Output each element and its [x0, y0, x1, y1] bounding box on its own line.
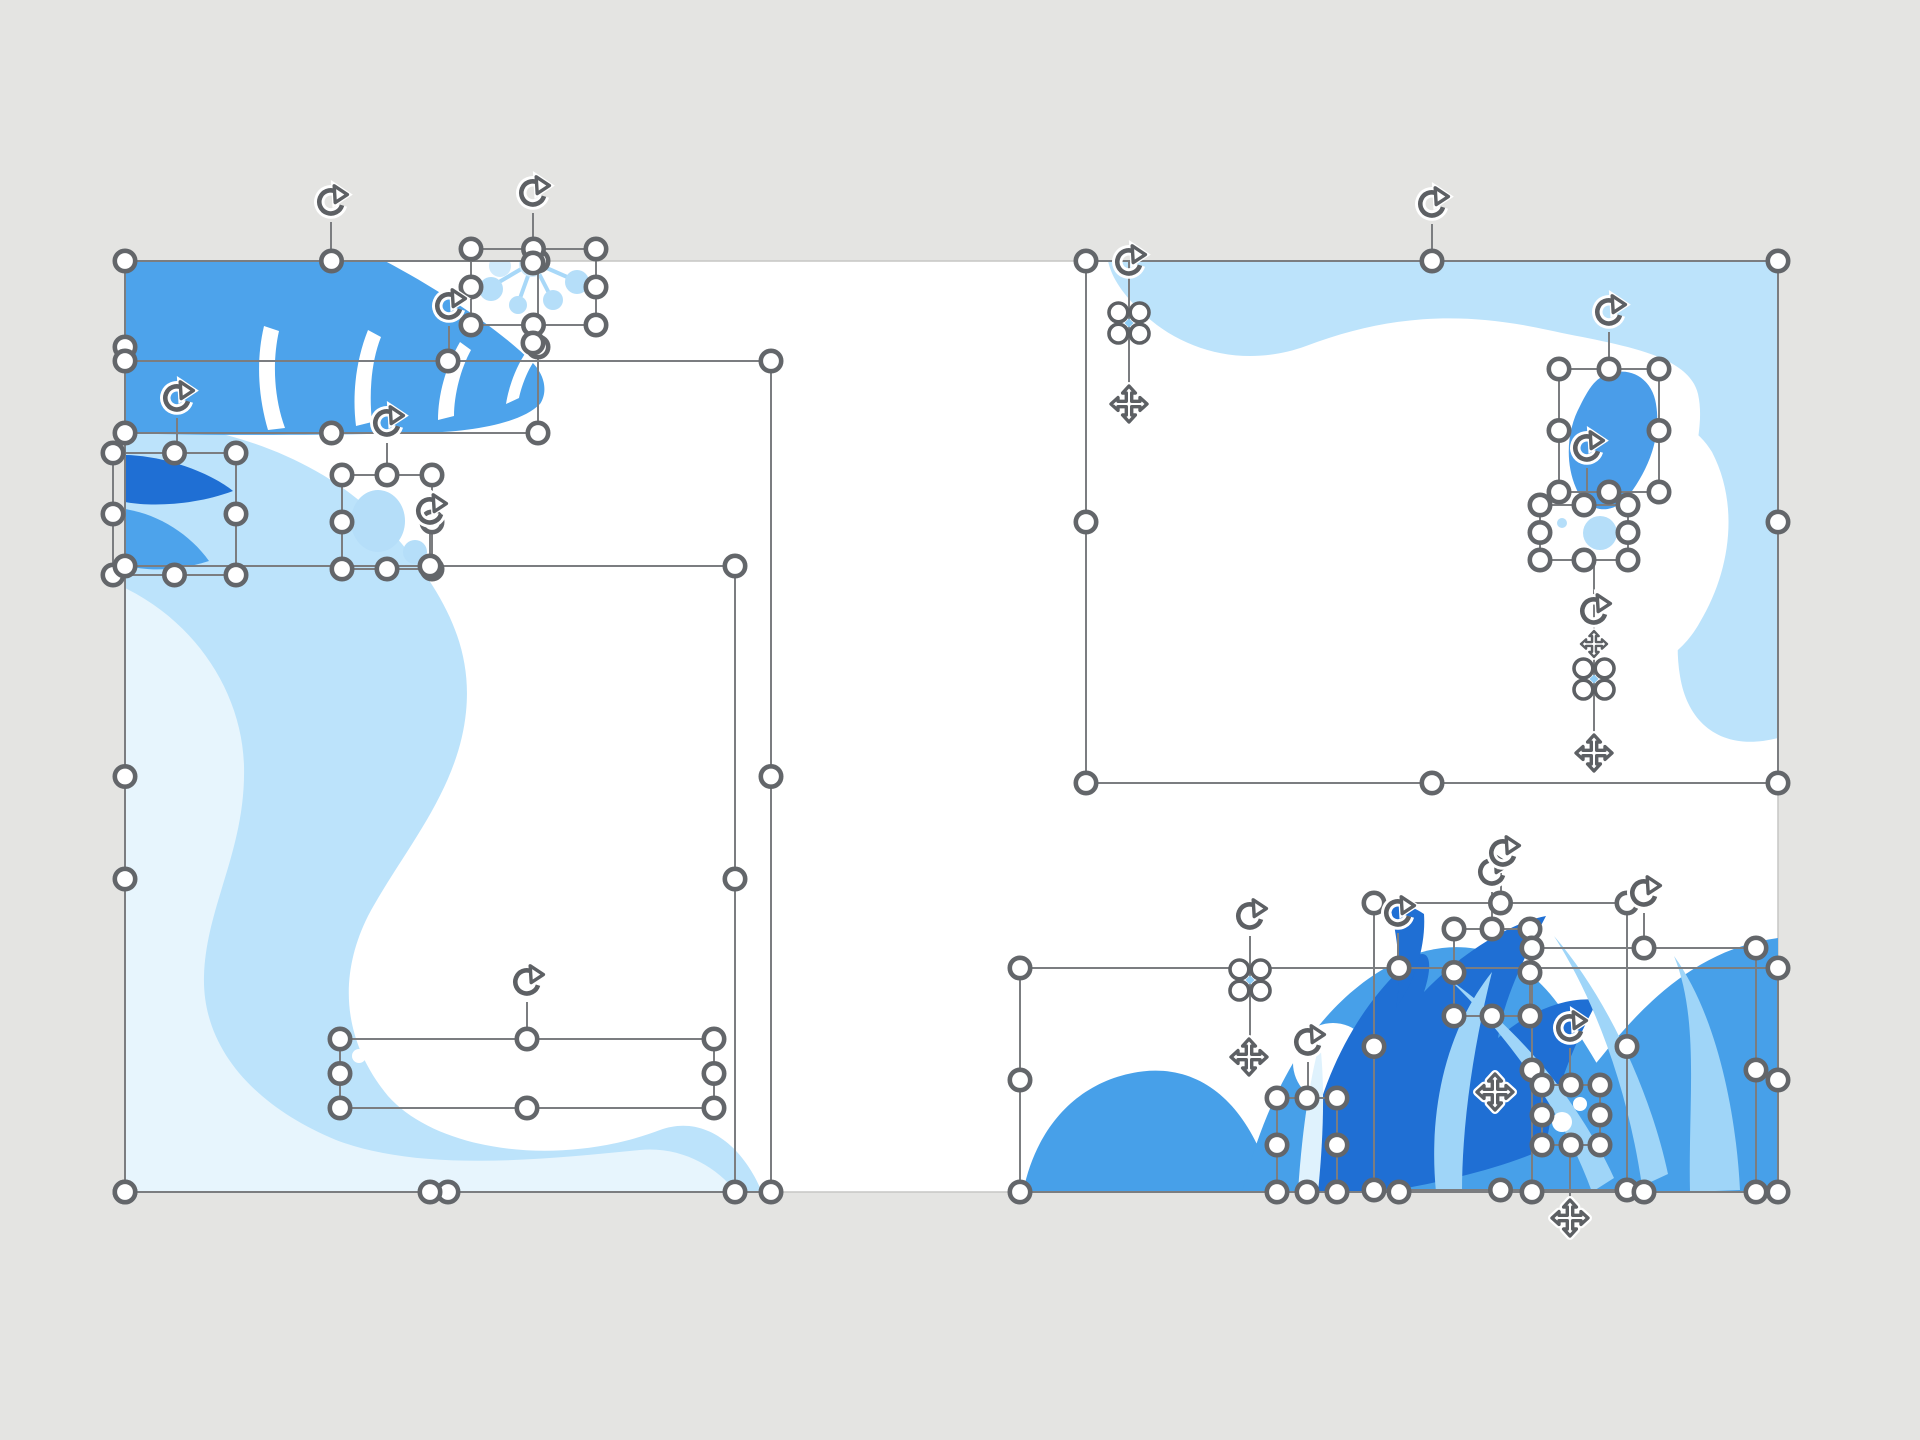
- selection-handle[interactable]: [1590, 1105, 1610, 1125]
- selection-handle[interactable]: [761, 1182, 781, 1202]
- selection-handle[interactable]: [1561, 1135, 1581, 1155]
- selection-handle[interactable]: [517, 1098, 537, 1118]
- selection-handle[interactable]: [1076, 251, 1096, 271]
- selection-handle[interactable]: [115, 556, 135, 576]
- bubble-artwork[interactable]: [351, 490, 405, 552]
- selection-handle[interactable]: [1532, 1105, 1552, 1125]
- selection-handle[interactable]: [1574, 495, 1594, 515]
- bubble-artwork[interactable]: [1583, 516, 1617, 550]
- selection-handle[interactable]: [226, 443, 246, 463]
- selection-handle[interactable]: [1490, 893, 1510, 913]
- selection-handle[interactable]: [1618, 495, 1638, 515]
- selection-handle[interactable]: [1522, 938, 1542, 958]
- selection-handle[interactable]: [422, 465, 442, 485]
- selection-handle[interactable]: [377, 559, 397, 579]
- selection-handle[interactable]: [103, 443, 123, 463]
- rotate-handle-icon[interactable]: [1117, 246, 1145, 274]
- selection-handle[interactable]: [115, 251, 135, 271]
- selection-handle[interactable]: [461, 239, 481, 259]
- selection-handle[interactable]: [1618, 550, 1638, 570]
- selection-handle[interactable]: [226, 504, 246, 524]
- bubble-artwork[interactable]: [1557, 518, 1567, 528]
- selection-handle[interactable]: [1599, 482, 1619, 502]
- rotate-handle-icon[interactable]: [1597, 296, 1625, 324]
- selection-handle[interactable]: [115, 766, 135, 786]
- move-handle-icon[interactable]: [1552, 1200, 1588, 1236]
- selection-handle[interactable]: [321, 251, 341, 271]
- selection-handle[interactable]: [1010, 1070, 1030, 1090]
- rotate-handle-icon[interactable]: [521, 177, 549, 205]
- selection-handle[interactable]: [1490, 1180, 1510, 1200]
- selection-handle[interactable]: [332, 465, 352, 485]
- selection-handle[interactable]: [1532, 1075, 1552, 1095]
- selection-handle[interactable]: [438, 351, 458, 371]
- selection-handle[interactable]: [1327, 1182, 1347, 1202]
- selection-handle[interactable]: [761, 351, 781, 371]
- selection-handle[interactable]: [523, 253, 543, 273]
- selection-handle[interactable]: [1076, 512, 1096, 532]
- selection-handle[interactable]: [1549, 359, 1569, 379]
- selection-handle[interactable]: [586, 277, 606, 297]
- selection-handle[interactable]: [1327, 1135, 1347, 1155]
- selection-handle[interactable]: [1634, 1182, 1654, 1202]
- florets-handle-icon[interactable]: [1574, 659, 1614, 699]
- selection-handle[interactable]: [420, 556, 440, 576]
- dandelion-seed: [489, 255, 511, 277]
- rotate-handle-icon[interactable]: [1420, 188, 1448, 216]
- rotate-handle-icon[interactable]: [1582, 595, 1610, 623]
- selection-handle[interactable]: [1618, 522, 1638, 542]
- selection-handle[interactable]: [1364, 1036, 1384, 1056]
- selection-handle[interactable]: [332, 512, 352, 532]
- florets-handle-icon[interactable]: [1230, 960, 1270, 1000]
- selection-handle[interactable]: [1649, 420, 1669, 440]
- selection-handle[interactable]: [704, 1029, 724, 1049]
- selection-handle[interactable]: [1267, 1182, 1287, 1202]
- selection-handle[interactable]: [1520, 962, 1540, 982]
- selection-handle[interactable]: [420, 1182, 440, 1202]
- rotate-handle-icon[interactable]: [1386, 897, 1414, 925]
- selection-handle[interactable]: [1768, 1182, 1788, 1202]
- selection-handle[interactable]: [1768, 251, 1788, 271]
- rotate-handle-icon[interactable]: [319, 186, 347, 214]
- selection-handle[interactable]: [226, 565, 246, 585]
- selection-handle[interactable]: [115, 351, 135, 371]
- selection-handle[interactable]: [1422, 251, 1442, 271]
- selection-handle[interactable]: [115, 869, 135, 889]
- selection-handle[interactable]: [1297, 1182, 1317, 1202]
- selection-handle[interactable]: [1746, 1182, 1766, 1202]
- selection-handle[interactable]: [330, 1029, 350, 1049]
- selection-handle[interactable]: [103, 504, 123, 524]
- selection-handle[interactable]: [1599, 359, 1619, 379]
- selection-handle[interactable]: [1590, 1075, 1610, 1095]
- selection-handle[interactable]: [1364, 1180, 1384, 1200]
- selection-handle[interactable]: [1267, 1088, 1287, 1108]
- dot-artwork[interactable]: [583, 1067, 605, 1089]
- selection-handle[interactable]: [164, 565, 184, 585]
- selection-handle[interactable]: [1530, 550, 1550, 570]
- dot-artwork[interactable]: [352, 1049, 366, 1063]
- selection-handle[interactable]: [1649, 359, 1669, 379]
- rotate-handle-icon[interactable]: [1238, 900, 1266, 928]
- selection-handle[interactable]: [1746, 938, 1766, 958]
- selection-handle[interactable]: [1444, 962, 1464, 982]
- selection-handle[interactable]: [1617, 1036, 1637, 1056]
- selection-handle[interactable]: [1389, 1182, 1409, 1202]
- selection-handle[interactable]: [704, 1098, 724, 1118]
- selection-handle[interactable]: [1746, 1060, 1766, 1080]
- dot-artwork[interactable]: [1552, 1112, 1572, 1132]
- selection-handle[interactable]: [1520, 1006, 1540, 1026]
- selection-handle[interactable]: [1422, 773, 1442, 793]
- selection-handle[interactable]: [1530, 522, 1550, 542]
- rotate-handle-icon[interactable]: [1558, 1012, 1586, 1040]
- rotate-handle-icon[interactable]: [1491, 837, 1519, 865]
- selection-handle[interactable]: [1768, 1070, 1788, 1090]
- selection-handle[interactable]: [1010, 958, 1030, 978]
- selection-handle[interactable]: [461, 315, 481, 335]
- selection-handle[interactable]: [523, 333, 543, 353]
- selection-handle[interactable]: [725, 869, 745, 889]
- selection-handle[interactable]: [1768, 512, 1788, 532]
- selection-handle[interactable]: [1768, 773, 1788, 793]
- selection-handle[interactable]: [1522, 1182, 1542, 1202]
- selection-handle[interactable]: [377, 465, 397, 485]
- selection-handle[interactable]: [1267, 1135, 1287, 1155]
- dot-artwork[interactable]: [1573, 1097, 1587, 1111]
- selection-handle[interactable]: [1549, 482, 1569, 502]
- dandelion-seed: [543, 290, 563, 310]
- selection-handle[interactable]: [164, 443, 184, 463]
- selection-handle[interactable]: [761, 766, 781, 786]
- selection-handle[interactable]: [332, 559, 352, 579]
- selection-handle[interactable]: [1482, 919, 1502, 939]
- selection-handle[interactable]: [528, 423, 548, 443]
- selection-handle[interactable]: [1482, 1006, 1502, 1026]
- selection-handle[interactable]: [1364, 893, 1384, 913]
- rotate-handle-icon[interactable]: [165, 382, 193, 410]
- selection-handle[interactable]: [1768, 958, 1788, 978]
- selection-handle[interactable]: [586, 239, 606, 259]
- selection-handle[interactable]: [330, 1063, 350, 1083]
- selection-handle[interactable]: [1561, 1075, 1581, 1095]
- selection-handle[interactable]: [1297, 1088, 1317, 1108]
- selection-handle[interactable]: [115, 1182, 135, 1202]
- florets-handle-icon[interactable]: [1109, 303, 1149, 343]
- rotate-handle-icon[interactable]: [375, 407, 403, 435]
- rotate-handle-icon[interactable]: [1632, 877, 1660, 905]
- rotate-handle-icon[interactable]: [1575, 432, 1603, 460]
- selection-handle[interactable]: [517, 1029, 537, 1049]
- rotate-handle-icon[interactable]: [418, 495, 446, 523]
- selection-handle[interactable]: [1530, 495, 1550, 515]
- selection-handle[interactable]: [725, 556, 745, 576]
- dandelion-seed: [509, 296, 527, 314]
- selection-handle[interactable]: [1574, 550, 1594, 570]
- editor-workspace: [0, 0, 1920, 1440]
- selection-handle[interactable]: [1076, 773, 1096, 793]
- selection-handle[interactable]: [1649, 482, 1669, 502]
- selection-handle[interactable]: [1590, 1135, 1610, 1155]
- selection-handle[interactable]: [725, 1182, 745, 1202]
- selection-handle[interactable]: [1389, 958, 1409, 978]
- selection-handle[interactable]: [1444, 919, 1464, 939]
- dot-artwork[interactable]: [687, 1068, 703, 1084]
- selection-handle[interactable]: [330, 1098, 350, 1118]
- selection-handle[interactable]: [1634, 938, 1654, 958]
- selection-handle[interactable]: [704, 1063, 724, 1083]
- selection-handle[interactable]: [1010, 1182, 1030, 1202]
- rotate-handle-icon[interactable]: [1296, 1026, 1324, 1054]
- selection-handle[interactable]: [586, 315, 606, 335]
- selection-handle[interactable]: [115, 423, 135, 443]
- selection-handle[interactable]: [1444, 1006, 1464, 1026]
- selection-handle[interactable]: [1327, 1088, 1347, 1108]
- rotate-handle-icon[interactable]: [515, 966, 543, 994]
- selection-handle[interactable]: [1532, 1135, 1552, 1155]
- selection-handle[interactable]: [321, 423, 341, 443]
- rotate-handle-icon[interactable]: [437, 290, 465, 318]
- selection-handle[interactable]: [1549, 420, 1569, 440]
